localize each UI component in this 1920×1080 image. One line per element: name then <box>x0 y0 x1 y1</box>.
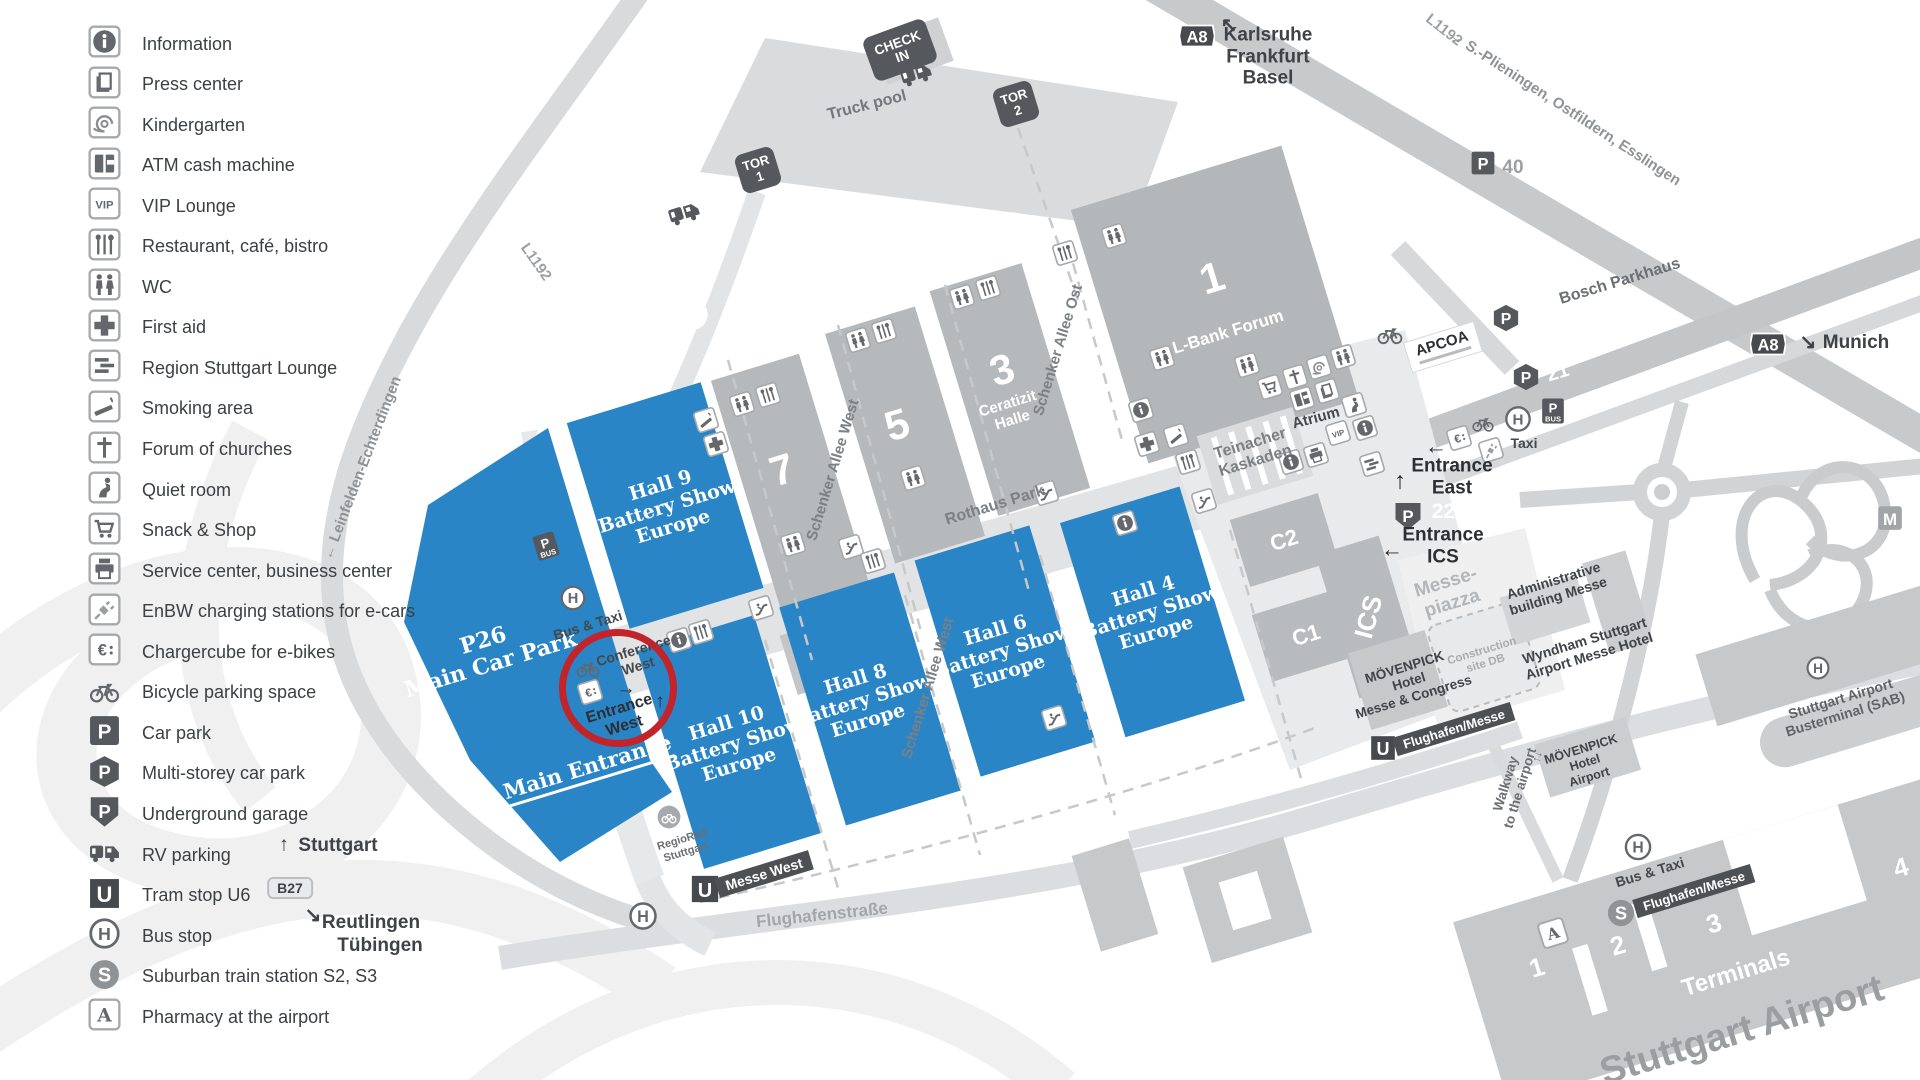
entrance-west-highlight-circle <box>559 629 677 747</box>
pbus-icon <box>1540 398 1566 424</box>
legend-item-restaurant: Restaurant, café, bistro <box>88 228 328 266</box>
entrance-ics-arrow: ← <box>1381 536 1403 561</box>
a8-icon <box>1750 326 1786 362</box>
entrance-east-arrow: ↑ <box>1394 467 1406 494</box>
rv-icon <box>88 836 121 874</box>
press-icon <box>88 66 121 104</box>
legend-item-wc: WC <box>88 268 172 306</box>
s-icon <box>88 958 121 996</box>
h-icon <box>1806 656 1831 681</box>
reutlingen-arrow: ↘ <box>305 905 322 928</box>
taxi-label: Taxi <box>1511 436 1538 452</box>
legend-item-press: Press center <box>88 66 243 104</box>
p2223-label: 22/23 <box>1432 500 1485 524</box>
quiet-icon <box>88 471 121 509</box>
messe-stuttgart-map: VIP € A P P P U H S PBUS M A8 <box>0 0 1920 1080</box>
first-aid-icon <box>88 309 121 347</box>
legend-item-church: Forum of churches <box>88 431 292 469</box>
legend-item-p-under: Underground garage <box>88 795 308 833</box>
legend-item-pharmacy: Pharmacy at the airport <box>88 998 329 1036</box>
legend-item-enbw: EnBW charging stations for e-cars <box>88 593 415 631</box>
stuttgart-arrow: ↑ <box>279 834 289 857</box>
tuebingen-direction: Tübingen <box>337 935 422 957</box>
vip-icon <box>88 187 121 225</box>
info-icon <box>88 25 121 63</box>
entrance-east-label: EntranceEast <box>1411 455 1492 498</box>
h-icon <box>1624 833 1653 862</box>
legend-item-atm: ATM cash machine <box>88 147 295 185</box>
munich-arrow: ↘ <box>1800 332 1817 355</box>
legend-item-u: Tram stop U6 <box>88 877 250 915</box>
regiorad-icon <box>656 804 682 830</box>
restaurant-icon <box>88 228 121 266</box>
munich-label: Munich <box>1823 332 1890 354</box>
legend-item-kindergarten: Kindergarten <box>88 106 245 144</box>
pharmacy-icon <box>88 998 121 1036</box>
m-icon <box>1877 505 1904 532</box>
legend-item-p-multi: Multi-storey car park <box>88 755 305 793</box>
bike-icon <box>1376 320 1404 348</box>
p-square-icon <box>88 714 121 752</box>
p-multi-icon <box>1512 363 1540 391</box>
entrance-ics-label: EntranceICS <box>1402 524 1483 567</box>
h-icon <box>1504 405 1532 433</box>
p-multi-icon <box>88 755 121 793</box>
smoking-icon <box>88 390 121 428</box>
atm-icon <box>88 147 121 185</box>
a8-icon <box>1179 18 1215 54</box>
legend-item-rv: RV parking <box>88 836 231 874</box>
s-icon <box>1606 898 1636 928</box>
church-icon <box>88 431 121 469</box>
h-icon <box>628 901 658 931</box>
legend-item-quiet: Quiet room <box>88 471 231 509</box>
kindergarten-icon <box>88 106 121 144</box>
stuttgart-direction: Stuttgart <box>298 835 377 857</box>
b27-badge: B27 <box>267 877 313 899</box>
p-square-icon <box>1470 150 1496 176</box>
karlsruhe-direction: KarlsruheFrankfurtBasel <box>1224 25 1313 90</box>
legend-item-smoking: Smoking area <box>88 390 253 428</box>
legend-item-p-square: Car park <box>88 714 211 752</box>
h-icon <box>88 917 121 955</box>
u-icon <box>88 877 121 915</box>
lounge-icon <box>88 349 121 387</box>
legend-item-charge: Chargercube for e-bikes <box>88 633 335 671</box>
roundabout <box>1640 470 1684 514</box>
enbw-icon <box>88 593 121 631</box>
printer-icon <box>88 552 121 590</box>
legend-item-h: Bus stop <box>88 917 212 955</box>
legend-item-info: Information <box>88 25 232 63</box>
legend-item-first-aid: First aid <box>88 309 206 347</box>
bike-icon <box>1471 411 1495 435</box>
p-multi-icon <box>1492 304 1520 332</box>
p40-label: 40 <box>1502 157 1523 179</box>
bike-icon <box>88 674 121 712</box>
legend-item-lounge: Region Stuttgart Lounge <box>88 349 337 387</box>
legend-item-cart: Snack & Shop <box>88 512 256 550</box>
reutlingen-direction: Reutlingen <box>322 912 420 934</box>
legend-item-bike: Bicycle parking space <box>88 674 316 712</box>
cart-icon <box>88 512 121 550</box>
legend-item-vip: VIP Lounge <box>88 187 236 225</box>
legend-item-printer: Service center, business center <box>88 552 392 590</box>
legend-item-s: Suburban train station S2, S3 <box>88 958 377 996</box>
charge-icon <box>88 633 121 671</box>
charge-station-arrow: ← <box>1425 433 1447 458</box>
p-under-icon <box>88 795 121 833</box>
wc-icon <box>88 268 121 306</box>
